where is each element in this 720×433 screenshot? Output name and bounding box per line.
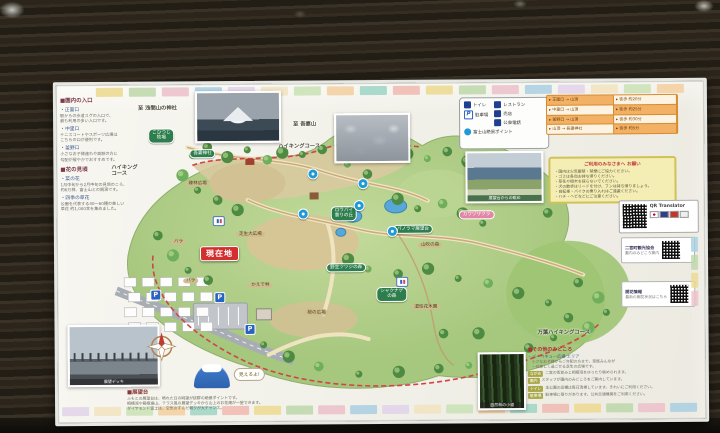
tree-highlight	[261, 342, 264, 345]
town-building	[142, 308, 154, 317]
tree-highlight	[223, 152, 229, 158]
map-label: カワヅザクラ	[459, 210, 495, 220]
color-tab	[691, 237, 698, 252]
others-row: 駐車場駐車場に限りがあります。公共交通機関をご利用ください。	[528, 392, 694, 399]
time-cell: ▸ 山頂 → 吾妻神社	[547, 125, 613, 134]
legend-row: 富士山絶景ポイント	[464, 128, 544, 136]
town-building	[182, 322, 194, 331]
qr-card-caption: 最新の開花状況はこちら	[625, 295, 667, 300]
toilet-icon	[464, 101, 471, 108]
map-label: ハイキングコース	[278, 143, 320, 149]
decor-tile	[657, 84, 684, 93]
legend-column: レストラン売店公衆電話	[494, 101, 525, 128]
tree-highlight	[264, 156, 268, 160]
decor-tile	[426, 85, 453, 94]
photo-rock-garden	[334, 113, 410, 164]
tree-highlight	[185, 268, 188, 271]
tree-highlight	[415, 206, 418, 209]
others-tag: トイレ	[528, 386, 543, 392]
tree-highlight	[204, 144, 208, 148]
map-label: パノラマ展望台	[393, 225, 433, 235]
decor-tile	[492, 85, 519, 94]
decor-tile	[327, 86, 354, 95]
toilet-icon	[396, 277, 408, 287]
qr-translator-card: QR Translator	[619, 200, 699, 234]
language-flags	[650, 211, 689, 218]
decor-tile	[360, 86, 387, 95]
time-cell: ▸ 釜野口 → 山頂	[547, 115, 613, 124]
map-label: 野生ツツジの森	[326, 263, 366, 273]
tree-highlight	[245, 147, 248, 150]
others-text: 本公園の設備は毎日清掃しています。きれいにご利用ください。	[545, 385, 655, 390]
walking-times-table: ▸ 正面口 → 山頂▸ 徒歩 約20分▸ 中里口 → 山頂▸ 徒歩 約25分▸ …	[546, 94, 678, 135]
photo-mt-fuji	[195, 91, 281, 144]
time-cell: ▸ 徒歩 約30分	[614, 115, 676, 124]
signboard: ■園内の入口・正面口駅からの歩道スグの入口で、最も利用の多い入口です。・中里口テ…	[53, 78, 709, 427]
time-cell: ▸ 徒歩 約20分	[614, 95, 676, 104]
map-label: 万葉ハイキングコース	[538, 330, 590, 336]
tree-highlight	[456, 276, 459, 279]
decor-tile	[525, 85, 552, 94]
map-label: ハイキング コース	[111, 165, 137, 177]
others-text: スタッフが園内のみどころをご案内しています。	[541, 378, 624, 383]
color-tab	[691, 255, 698, 270]
time-cell: ▸ 徒歩 約25分	[614, 105, 676, 114]
legend-label: レストラン	[503, 101, 525, 107]
decor-tile	[624, 84, 651, 93]
tree-highlight	[356, 372, 359, 375]
section-header: ■園内の入口	[60, 96, 156, 105]
others-text: 駐車場に限りがあります。公共交通機関をご利用ください。	[545, 393, 647, 398]
tree-highlight	[393, 194, 399, 200]
legend-row: 公衆電話	[494, 119, 525, 126]
tree-highlight	[425, 156, 428, 159]
legend-column: トイレP駐車場	[464, 101, 488, 128]
legend-label: 公衆電話	[503, 120, 521, 126]
photo-caption: 展望デッキ	[70, 379, 158, 385]
time-cell: ▸ 正面口 → 山頂	[547, 95, 613, 104]
qr-card-caption: 園内のみどころ案内	[625, 251, 659, 256]
parking-icon: P	[244, 324, 255, 335]
tree-highlight	[440, 330, 444, 334]
map-label: かえで林	[248, 283, 272, 288]
others-row: トイレ本公園の設備は毎日清掃しています。きれいにご利用ください。	[528, 385, 694, 392]
restaurant-icon	[494, 101, 501, 108]
legend-columns: トイレP駐車場レストラン売店公衆電話	[464, 101, 544, 129]
qr-translator-label: QR Translator	[650, 204, 689, 209]
town-building	[124, 278, 136, 287]
tree-highlight	[444, 148, 448, 152]
others-header: ■その他のみどころ	[528, 345, 694, 353]
tree-highlight	[214, 197, 218, 201]
legend-row: 売店	[494, 110, 525, 117]
decor-tile	[558, 85, 585, 94]
map-label: 芝生大広場	[236, 232, 265, 237]
map-label: バラ	[171, 239, 186, 244]
parking-icon: P	[464, 110, 473, 119]
tree-highlight	[480, 221, 483, 224]
tree-highlight	[466, 363, 469, 366]
town-building	[200, 322, 212, 331]
map-legend: トイレP駐車場レストラン売店公衆電話富士山絶景ポイント	[459, 97, 549, 150]
others-tag: 駐車場	[528, 393, 543, 399]
tree-highlight	[195, 188, 198, 191]
flag-china-icon	[670, 211, 679, 218]
tree-highlight	[154, 232, 158, 236]
legend-label: 売店	[503, 111, 512, 117]
flag-korea-icon	[680, 211, 689, 218]
town-building	[178, 307, 190, 316]
decor-tiles-top	[56, 81, 704, 86]
qr-code	[623, 204, 647, 228]
tree-highlight	[343, 255, 349, 261]
town-building	[182, 292, 194, 301]
tree-highlight	[439, 200, 443, 204]
tree-highlight	[604, 310, 607, 313]
time-cell: ▸ 徒歩 約5分	[614, 124, 676, 133]
map-label: 疎林広場	[186, 181, 210, 186]
map-label: こひつじ 牧場	[148, 128, 174, 143]
map-label: バラ	[183, 278, 198, 283]
decor-tile	[459, 85, 486, 94]
photo-valley-view: 展望台からの眺め	[465, 151, 543, 204]
others-tag: 園内	[528, 378, 540, 384]
current-location-marker: 現在地	[200, 246, 239, 261]
decor-tile	[446, 404, 473, 413]
decor-tile	[670, 403, 697, 412]
color-tab-strip	[691, 237, 699, 309]
decor-tile	[574, 403, 601, 412]
tree-highlight	[424, 264, 430, 270]
tree-highlight	[233, 205, 239, 211]
fuji-view-spot-icon	[298, 209, 309, 220]
decor-tile	[591, 84, 618, 93]
town-building	[196, 307, 208, 316]
decor-tile	[638, 403, 665, 412]
fuji-spot-icon	[464, 128, 471, 135]
qr-code	[662, 241, 680, 259]
tree-highlight	[178, 171, 184, 177]
tree-highlight	[300, 152, 303, 155]
legend-row: レストラン	[494, 101, 525, 108]
tree-highlight	[364, 170, 368, 174]
tree-highlight	[584, 323, 590, 329]
qr-info-card: 二宮町観光協会園内のみどころ案内	[621, 237, 695, 264]
others-text: 二宮の街並みと相模湾をゆったり眺められます。	[545, 370, 628, 375]
decor-tile	[62, 407, 89, 416]
town-building	[128, 293, 140, 302]
qr-info-card: 開花情報最新の開花状況はこちら	[621, 281, 695, 308]
fuji-view-spot-icon	[307, 168, 318, 179]
compass-rose-icon	[146, 329, 178, 365]
tree-highlight	[546, 300, 549, 303]
speech-bubble: 見えるよ!	[234, 368, 265, 381]
time-cell: ▸ 中里口 → 山頂	[547, 105, 613, 114]
notes-title: ご利用のみなさまへ お願い	[554, 161, 670, 168]
photo-caption: 展望台からの眺め	[468, 195, 542, 201]
phone-icon	[494, 119, 501, 126]
decor-tile	[94, 407, 121, 416]
town-building	[164, 292, 176, 301]
color-tab	[691, 291, 698, 306]
legend-label: トイレ	[473, 102, 486, 108]
legend-row: トイレ	[464, 101, 488, 108]
town-building	[160, 307, 172, 316]
qr-card-text: 二宮町観光協会園内のみどころ案内	[625, 245, 659, 256]
map-label: シャクナゲ の森	[376, 287, 407, 302]
others-row: 園内スタッフが園内のみどころをご案内しています。	[528, 377, 694, 384]
decor-tile	[606, 403, 633, 412]
photo-caption: 自然林の小道	[480, 402, 524, 408]
town-building	[200, 292, 212, 301]
legend-label: 富士山絶景ポイント	[473, 129, 513, 135]
qr-card-text: 開花情報最新の開花状況はこちら	[625, 289, 667, 300]
color-tab	[691, 273, 698, 288]
tree-highlight	[594, 293, 600, 299]
parking-icon: P	[214, 292, 225, 303]
decor-tile	[382, 405, 409, 414]
tree-highlight	[485, 280, 489, 284]
map-label: 至 吾妻山	[293, 121, 316, 127]
tree-highlight	[168, 251, 174, 257]
town-building	[142, 278, 154, 287]
flag-japan-icon	[650, 211, 659, 218]
map-label: 至 浅間山の神社	[138, 105, 177, 111]
tree-highlight	[435, 365, 439, 369]
fuji-view-spot-icon	[387, 226, 398, 237]
map-label: 吾妻神社	[189, 149, 215, 158]
flag-uk-icon	[660, 211, 669, 218]
tree-highlight	[394, 367, 400, 373]
decor-tile	[542, 404, 569, 413]
visitor-notes-box: ご利用のみなさまへ お願い ・園内は火気厳禁・禁煙にご協力ください。・ゴミは各自…	[548, 156, 676, 204]
legend-label: 駐車場	[475, 112, 488, 118]
tree-highlight	[315, 363, 319, 367]
viewpoint-description: ■展望台 ふもとの展望台は、晴れた日の眺望が抜群の絶景ポイントです。相模湾や箱根…	[127, 386, 367, 411]
others-row: ながめ二宮の街並みと相模湾をゆったり眺められます。	[528, 370, 694, 377]
qr-code	[670, 285, 688, 303]
other-highlights-section: ■その他のみどころ ・バーベキュー広場 エリア 小さなお子様からご年配の方まで、…	[528, 345, 694, 400]
decor-tile	[162, 87, 189, 96]
map-label: 湿性花木園	[411, 305, 440, 310]
tree-highlight	[565, 314, 569, 318]
town-building	[160, 277, 172, 286]
photo-forest-path: 自然林の小道	[478, 352, 526, 410]
decor-tile	[393, 86, 420, 95]
map-label: 山吹の森	[418, 243, 442, 248]
decor-tile	[294, 86, 321, 95]
map-label: 桜の広場	[304, 310, 328, 315]
others-tag: ながめ	[528, 371, 543, 377]
tree-highlight	[544, 209, 548, 213]
decor-tile	[414, 405, 441, 414]
legend-row: P駐車場	[464, 110, 488, 119]
tree-highlight	[474, 329, 480, 335]
tree-highlight	[395, 270, 399, 274]
fuji-view-spot-icon	[354, 200, 365, 211]
shop-icon	[494, 110, 501, 117]
tree-highlight	[514, 288, 520, 294]
map-label: ロウバイ 香りの丘	[331, 206, 357, 221]
photo-scene: ■園内の入口・正面口駅からの歩道スグの入口で、最も利用の多い入口です。・中里口テ…	[0, 0, 720, 433]
note-line: ・ハチ・ヘビなどにご注意ください。	[555, 193, 671, 199]
fuji-view-spot-icon	[357, 178, 368, 189]
toilet-icon	[213, 216, 225, 226]
town-building	[124, 308, 136, 317]
tree-highlight	[205, 277, 209, 281]
tree-highlight	[575, 279, 579, 283]
parking-icon: P	[150, 290, 161, 301]
tree-highlight	[284, 352, 290, 358]
